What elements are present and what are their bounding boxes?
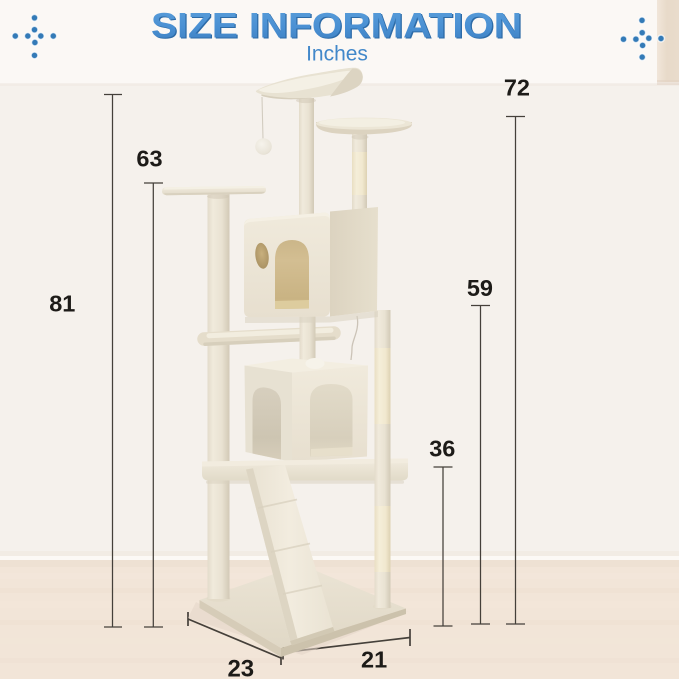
svg-text:21: 21 <box>361 647 387 673</box>
svg-text:59: 59 <box>467 275 493 301</box>
svg-text:63: 63 <box>136 145 162 171</box>
svg-text:23: 23 <box>227 656 254 679</box>
svg-text:72: 72 <box>504 75 530 101</box>
svg-text:81: 81 <box>49 290 75 316</box>
svg-text:36: 36 <box>429 435 455 461</box>
svg-text:Inches: Inches <box>306 43 368 66</box>
svg-text:SIZE INFORMATION: SIZE INFORMATION <box>151 5 522 45</box>
